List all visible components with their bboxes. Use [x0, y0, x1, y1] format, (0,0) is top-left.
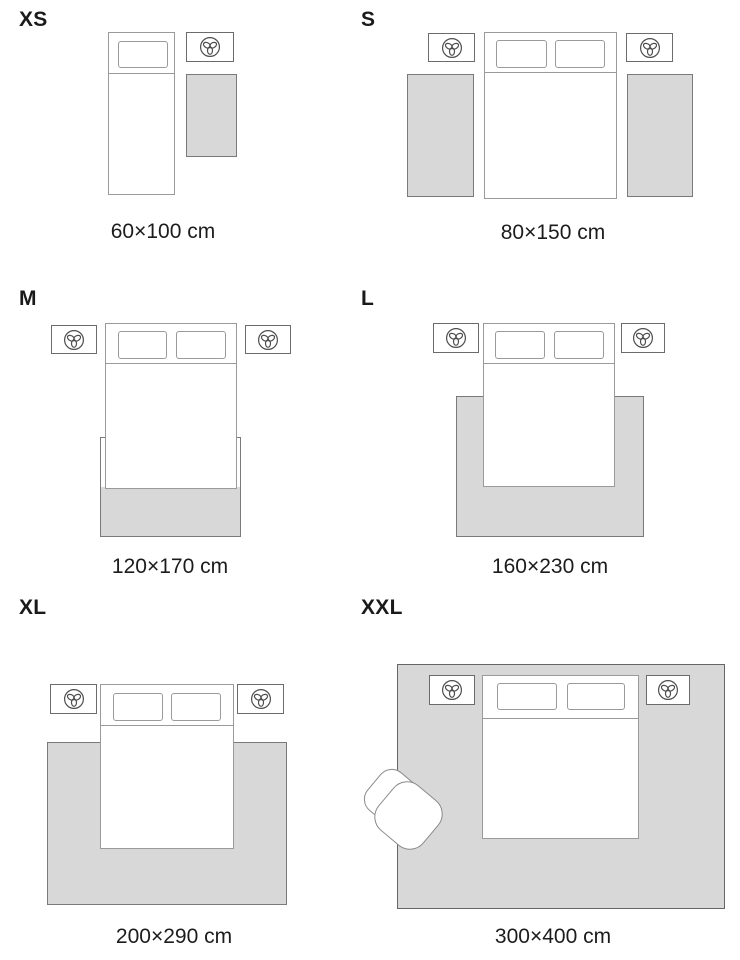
- table-lamp-icon: [657, 679, 679, 701]
- table-lamp-icon: [632, 327, 654, 349]
- rug-size-guide: XS 60×100 cm S: [0, 0, 740, 960]
- headboard-divider: [484, 72, 617, 73]
- size-label-m: M: [19, 287, 37, 311]
- size-caption-xs: 60×100 cm: [63, 220, 263, 244]
- table-lamp-icon: [639, 37, 661, 59]
- nightstand-right: [621, 323, 665, 353]
- table-lamp-icon: [63, 329, 85, 351]
- size-label-l: L: [361, 287, 374, 311]
- panel-l: L: [350, 280, 740, 590]
- rug-runner-left: [407, 74, 474, 197]
- size-label-xl: XL: [19, 596, 46, 620]
- nightstand-left: [433, 323, 479, 353]
- table-lamp-icon: [441, 679, 463, 701]
- pillow-right: [567, 683, 625, 710]
- headboard-divider: [100, 725, 234, 726]
- table-lamp-icon: [257, 329, 279, 351]
- pillow-right: [554, 331, 604, 359]
- pillow-right: [555, 40, 605, 68]
- nightstand-left: [428, 33, 475, 62]
- size-label-xs: XS: [19, 8, 48, 32]
- nightstand-right: [626, 33, 673, 62]
- nightstand-right: [245, 325, 291, 354]
- size-caption-xl: 200×290 cm: [74, 925, 274, 949]
- pillow-right: [171, 693, 221, 721]
- double-bed: [100, 684, 234, 849]
- table-lamp-icon: [199, 36, 221, 58]
- nightstand-left: [429, 675, 475, 705]
- pillow-left: [497, 683, 557, 710]
- size-caption-s: 80×150 cm: [453, 221, 653, 245]
- panel-xs: XS 60×100 cm: [0, 0, 340, 260]
- table-lamp-icon: [441, 37, 463, 59]
- pillow-left: [113, 693, 163, 721]
- double-bed: [482, 675, 639, 839]
- headboard-divider: [108, 73, 175, 74]
- table-lamp-icon: [63, 688, 85, 710]
- panel-xxl: XXL: [350, 590, 740, 960]
- pillow-left: [495, 331, 545, 359]
- table-lamp-icon: [445, 327, 467, 349]
- panel-xl: XL: [0, 590, 340, 960]
- headboard-divider: [105, 363, 237, 364]
- size-caption-l: 160×230 cm: [450, 555, 650, 579]
- pillow-left: [496, 40, 547, 68]
- nightstand-right: [237, 684, 284, 714]
- pillow: [118, 41, 168, 68]
- table-lamp-icon: [250, 688, 272, 710]
- nightstand: [186, 32, 234, 62]
- pillow-left: [118, 331, 167, 359]
- panel-s: S: [350, 0, 740, 260]
- size-label-xxl: XXL: [361, 596, 403, 620]
- nightstand-right: [646, 675, 690, 705]
- double-bed: [105, 323, 237, 489]
- double-bed: [484, 32, 617, 199]
- rug-runner-right: [627, 74, 693, 197]
- headboard-divider: [482, 718, 639, 719]
- pillow-right: [176, 331, 226, 359]
- size-caption-xxl: 300×400 cm: [453, 925, 653, 949]
- rug-xs: [186, 74, 237, 157]
- double-bed: [483, 323, 615, 487]
- nightstand-left: [50, 684, 97, 714]
- size-caption-m: 120×170 cm: [70, 555, 270, 579]
- nightstand-left: [51, 325, 97, 354]
- size-label-s: S: [361, 8, 375, 32]
- panel-m: M: [0, 280, 340, 590]
- headboard-divider: [483, 363, 615, 364]
- single-bed: [108, 32, 175, 195]
